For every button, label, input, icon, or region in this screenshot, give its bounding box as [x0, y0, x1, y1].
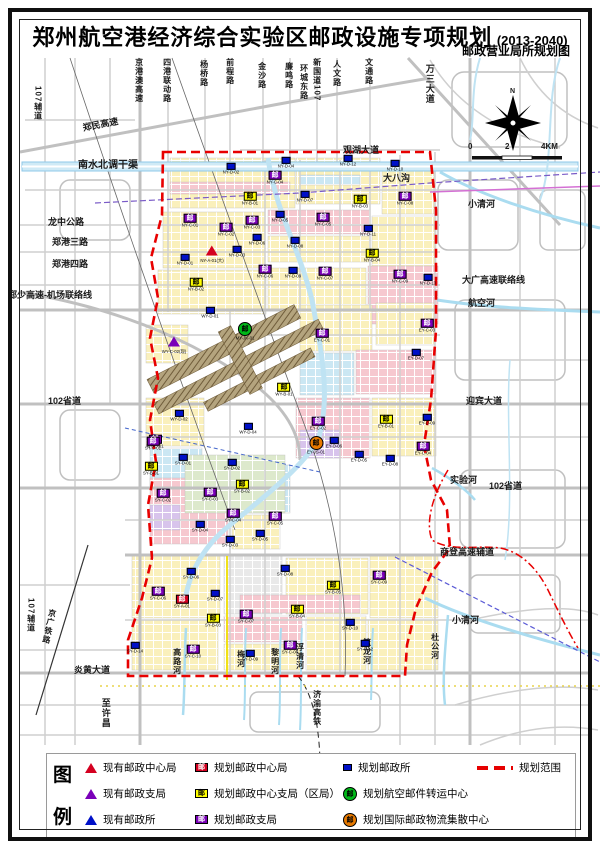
map-label: 杜公河 — [430, 633, 439, 660]
facility-code: SY-D-02 — [224, 467, 240, 471]
facility-code: EY-C-01 — [314, 339, 330, 343]
legend-item: 邮规划邮政中心支局（区局） — [195, 786, 340, 801]
facility-code: NY-B-03 — [352, 205, 368, 209]
facility-code: NY-D-12 — [340, 163, 356, 167]
facility-marker-sq-purple: 邮NY-C-09 — [389, 270, 412, 285]
map-label: 新国道107 — [312, 58, 321, 101]
facility-marker-sq-blue: SY-D-02 — [221, 459, 243, 472]
facility-code: SY-C-02 — [155, 499, 171, 503]
sq-purple-symbol-icon: 邮 — [269, 512, 282, 521]
facility-marker-sq-purple: 邮SY-C-01 — [142, 437, 164, 452]
sq-yellow-symbol-icon: 邮 — [207, 614, 220, 623]
facility-code: NY-C-06 — [257, 275, 273, 279]
facility-marker-sq-blue: SY-D-01 — [172, 454, 194, 467]
map-label: 廉鸣路 — [284, 62, 293, 89]
facility-code: EY-D-08 — [382, 463, 398, 467]
sq-purple-symbol-icon: 邮 — [398, 192, 411, 201]
planning-map-page: 107辅道郑民高速京港澳高速四港联动路杨桥路前程路金沙路廉鸣路环城东路新国道10… — [0, 0, 600, 849]
facility-marker-sq-yellow: 邮EY-B-01 — [375, 415, 397, 430]
map-label: 郑港三路 — [52, 238, 88, 248]
tri-red-symbol-icon — [206, 246, 218, 256]
map-label: 郑少高速-机场联络线 — [8, 291, 92, 301]
facility-marker-tri-red: NY-A-01(大) — [196, 246, 228, 265]
facility-code: SY-B-02 — [234, 490, 250, 494]
sq-blue-symbol-icon — [390, 160, 399, 167]
sq-yellow-symbol-icon: 邮 — [190, 278, 203, 287]
facility-marker-sq-blue: SY-D-07 — [204, 590, 226, 603]
sq-yellow-symbol-icon: 邮 — [380, 415, 393, 424]
sq-blue-symbol-icon — [386, 455, 395, 462]
facility-marker-sq-purple: 邮SY-C-03 — [199, 488, 221, 503]
facility-marker-sq-blue: SY-D-06 — [180, 568, 202, 581]
sq-purple-symbol-icon: 邮 — [316, 213, 329, 222]
facility-code: MY-JK-01 — [236, 337, 255, 341]
sq-yellow-symbol-icon: 邮 — [291, 605, 304, 614]
sq-blue-symbol-icon — [175, 410, 184, 417]
sq-blue-symbol-icon — [281, 157, 290, 164]
sq-blue-symbol-icon — [232, 246, 241, 253]
legend-title-char: 例 — [53, 802, 72, 829]
facility-marker-sq-purple: 邮SY-C-05 — [264, 512, 286, 527]
facility-marker-sq-blue: NY-D-11 — [357, 225, 379, 238]
facility-code: NY-B-02 — [188, 288, 204, 292]
sq-yellow-symbol-icon: 邮 — [354, 195, 367, 204]
facility-marker-tri-purple: WY-C-02(现) — [157, 337, 191, 356]
sq-purple-symbol-icon: 邮 — [318, 267, 331, 276]
sq-purple-symbol-icon: 邮 — [312, 417, 325, 426]
legend-title-char: 图 — [53, 760, 72, 787]
legend-item-label: 现有邮政中心局 — [103, 760, 177, 775]
sq-purple-symbol-icon: 邮 — [393, 270, 406, 279]
facility-marker-sq-blue: SY-D-05 — [249, 530, 271, 543]
sq-yellow-symbol-icon: 邮 — [366, 249, 379, 258]
sq-blue-symbol-icon — [281, 565, 290, 572]
map-label: 黎明河 — [270, 648, 279, 675]
facility-marker-sq-purple: 邮NY-C-05 — [312, 213, 335, 228]
facility-marker-sq-purple: 邮EY-C-01 — [311, 329, 333, 344]
facility-code: SY-C-08 — [282, 651, 298, 655]
facility-marker-sq-purple: 邮NY-C-04 — [264, 171, 287, 186]
facility-marker-sq-yellow: 邮SY-B-05 — [322, 581, 344, 596]
facility-code: SY-C-07 — [238, 620, 254, 624]
sq-yellow-symbol-icon: 邮 — [277, 383, 290, 392]
map-label: 4KM — [541, 143, 558, 152]
facility-marker-sq-blue: NY-D-13 — [417, 274, 440, 287]
facility-marker-cir-green: 邮MY-JK-01 — [232, 322, 258, 342]
legend-item: 现有邮政支局 — [85, 786, 166, 801]
sq-blue-symbol-icon — [244, 423, 253, 430]
legend-item-label: 规划国际邮政物流集散中心 — [363, 812, 489, 827]
map-label: 环城东路 — [299, 64, 308, 100]
facility-code: NY-C-02 — [218, 233, 234, 237]
sq-purple-symbol-icon: 邮 — [268, 171, 281, 180]
facility-code: NY-D-04 — [278, 165, 294, 169]
legend-item: 规划邮政所 — [343, 760, 411, 775]
map-label: 航空河 — [468, 299, 495, 309]
facility-marker-sq-yellow: 邮WY-B-01 — [272, 383, 296, 398]
facility-marker-sq-blue: EY-D-09 — [416, 414, 438, 427]
sq-purple-symbol-icon: 邮 — [152, 587, 165, 596]
map-label: 小清河 — [452, 616, 479, 626]
map-label: 102省道 — [48, 397, 81, 407]
facility-code: NY-C-04 — [267, 181, 283, 185]
facility-marker-sq-yellow: 邮NY-B-04 — [361, 249, 383, 264]
facility-marker-sq-blue: NY-D-12 — [337, 155, 360, 168]
facility-marker-sq-purple: 邮NY-C-07 — [314, 267, 337, 282]
legend-item: 邮规划国际邮政物流集散中心 — [343, 812, 489, 827]
legend-item-label: 现有邮政支局 — [103, 786, 166, 801]
legend-item-label: 规划邮政所 — [358, 760, 411, 775]
facility-marker-sq-blue: WY-D-02 — [167, 410, 191, 423]
facility-code: NY-D-05 — [272, 219, 288, 223]
map-overlay: 107辅道郑民高速京港澳高速四港联动路杨桥路前程路金沙路廉鸣路环城东路新国道10… — [0, 0, 600, 849]
sq-purple-symbol-icon: 邮 — [284, 641, 297, 650]
facility-code: NY-D-07 — [297, 199, 313, 203]
facility-code: NY-D-01 — [177, 262, 193, 266]
facility-marker-sq-yellow: 邮NY-B-02 — [185, 278, 207, 293]
legend-item-label: 规划邮政中心局 — [214, 760, 288, 775]
facility-marker-sq-yellow: 邮SY-B-01 — [140, 462, 162, 477]
map-label: 京港澳高速 — [134, 58, 143, 103]
facility-marker-sq-blue: SY-D-12 — [354, 640, 376, 653]
facility-code: NY-B-04 — [364, 259, 380, 263]
facility-marker-sq-purple: 邮EY-C-02 — [307, 417, 329, 432]
facility-marker-sq-blue: WY-D-01 — [198, 307, 222, 320]
facility-marker-sq-blue: NY-D-03 — [226, 246, 249, 259]
tri-red-symbol-icon — [85, 763, 97, 773]
sq-blue-symbol-icon — [187, 568, 196, 575]
facility-code: NY-C-05 — [315, 223, 331, 227]
facility-marker-sq-yellow: 邮NY-B-01 — [239, 192, 261, 207]
sq-yellow-symbol-icon: 邮 — [145, 462, 158, 471]
facility-marker-sq-purple: 邮SY-C-09 — [368, 571, 390, 586]
facility-marker-sq-blue: NY-D-10 — [384, 160, 407, 173]
facility-marker-sq-blue: SY-D-09 — [239, 650, 261, 663]
sq-red-symbol-icon: 邮 — [176, 595, 189, 604]
cir-orange-symbol-icon: 邮 — [343, 813, 357, 827]
map-label: 107辅道 — [33, 86, 42, 120]
sq-purple-symbol-icon: 邮 — [204, 488, 217, 497]
sq-blue-symbol-icon — [355, 451, 364, 458]
sq-purple-symbol-icon: 邮 — [421, 319, 434, 328]
sq-blue-symbol-icon — [226, 536, 235, 543]
facility-code: WY-D-02 — [170, 418, 187, 422]
map-label: 102省道 — [489, 482, 522, 492]
facility-code: EY-D-06 — [326, 445, 342, 449]
legend-item: 邮规划邮政支局 — [195, 812, 277, 827]
sq-blue-symbol-icon — [180, 254, 189, 261]
sq-purple-symbol-icon: 邮 — [245, 216, 258, 225]
facility-marker-sq-blue: SY-D-14 — [124, 642, 146, 655]
map-label: 大八沟 — [383, 174, 410, 184]
facility-code: EY-C-03 — [419, 329, 435, 333]
facility-code: WY-D-01 — [201, 315, 218, 319]
facility-code: SY-D-03 — [222, 544, 238, 548]
sq-purple-symbol-icon: 邮 — [219, 223, 232, 232]
facility-code: NY-D-10 — [387, 168, 403, 172]
facility-code: WY-B-01 — [275, 393, 292, 397]
facility-code: NY-C-03 — [244, 226, 260, 230]
facility-code: SY-D-10 — [342, 627, 358, 631]
map-label: 万三大道 — [424, 64, 434, 104]
sq-blue-symbol-icon — [346, 619, 355, 626]
facility-code: NY-D-09 — [285, 275, 301, 279]
facility-code: SY-A-01 — [174, 605, 190, 609]
facility-code: SY-D-12 — [357, 648, 373, 652]
facility-marker-sq-blue: WY-D-04 — [236, 423, 260, 436]
facility-code: SY-B-04 — [289, 615, 305, 619]
sq-blue-symbol-icon — [423, 414, 432, 421]
sq-purple-symbol-icon: 邮 — [316, 329, 329, 338]
sq-blue-symbol-icon — [206, 307, 215, 314]
facility-marker-sq-purple: 邮SY-C-06 — [147, 587, 169, 602]
legend-item: 现有邮政所 — [85, 812, 156, 827]
facility-code: SY-C-03 — [202, 498, 218, 502]
map-label: 高路河 — [172, 648, 181, 675]
tri-purple-symbol-icon — [85, 789, 97, 799]
facility-marker-sq-blue: EY-D-08 — [379, 455, 401, 468]
map-label: 前程路 — [225, 58, 234, 85]
facility-code: NY-B-01 — [242, 202, 258, 206]
sq-red-symbol-icon: 邮 — [195, 763, 208, 772]
sq-blue-symbol-icon — [252, 234, 261, 241]
facility-marker-sq-blue: EY-D-07 — [405, 349, 427, 362]
facility-marker-sq-blue: SY-D-03 — [219, 536, 241, 549]
sq-blue-symbol-icon — [300, 191, 309, 198]
facility-code: SY-D-04 — [192, 529, 208, 533]
facility-marker-sq-blue: NY-D-08 — [284, 237, 307, 250]
facility-code: NY-D-08 — [287, 245, 303, 249]
facility-code: NY-D-11 — [360, 233, 376, 237]
sq-blue-symbol-icon — [246, 650, 255, 657]
legend-item-label: 规划邮政支局 — [214, 812, 277, 827]
map-label: 炎黄大道 — [74, 666, 110, 676]
sq-purple-symbol-icon: 邮 — [417, 442, 430, 451]
map-label: 2 — [505, 143, 509, 152]
sq-blue-symbol-icon — [196, 521, 205, 528]
facility-code: NY-D-13 — [420, 282, 436, 286]
facility-code: SY-C-01 — [145, 447, 161, 451]
map-label: 107辅道 — [26, 598, 35, 632]
sq-blue-symbol-icon — [412, 349, 421, 356]
facility-code: SY-C-10 — [185, 655, 201, 659]
facility-marker-sq-purple: 邮NY-C-02 — [215, 223, 238, 238]
map-label: 郑港四路 — [52, 260, 88, 270]
facility-code: NY-A-01(大) — [200, 257, 223, 263]
sq-purple-symbol-icon: 邮 — [373, 571, 386, 580]
facility-marker-sq-yellow: 邮NY-B-03 — [349, 195, 371, 210]
facility-code: SY-D-07 — [207, 598, 223, 602]
map-label: 小清河 — [468, 200, 495, 210]
page-title: 郑州航空港经济综合实验区邮政设施专项规划 — [32, 25, 492, 50]
sq-blue-symbol-icon — [211, 590, 220, 597]
facility-code: NY-C-01 — [182, 224, 198, 228]
map-label: 龙中公路 — [48, 218, 84, 228]
legend-item: 现有邮政中心局 — [85, 760, 177, 775]
facility-marker-sq-blue: NY-D-02 — [220, 163, 243, 176]
map-label: 杨桥路 — [199, 60, 208, 87]
sq-blue-symbol-icon — [179, 454, 188, 461]
sq-blue-symbol-icon — [423, 274, 432, 281]
map-label: 济渝高铁 — [312, 690, 321, 726]
tri-blue-symbol-icon — [85, 815, 97, 825]
facility-marker-sq-red: 邮SY-A-01 — [171, 595, 193, 610]
map-label: 大广高速联络线 — [462, 276, 525, 286]
facility-code: SY-D-09 — [242, 658, 258, 662]
map-label: 0 — [468, 143, 472, 152]
sq-blue-symbol-icon — [275, 211, 284, 218]
map-label: 实验河 — [450, 476, 477, 486]
map-label: 金沙路 — [257, 62, 266, 89]
facility-code: WY-C-02(现) — [162, 348, 187, 354]
facility-marker-sq-purple: 邮EY-C-03 — [416, 319, 438, 334]
facility-code: EY-D-07 — [408, 357, 424, 361]
facility-code: SY-C-05 — [267, 522, 283, 526]
sq-purple-symbol-icon: 邮 — [195, 815, 208, 824]
facility-marker-sq-blue: SY-D-10 — [339, 619, 361, 632]
facility-code: EY-D-09 — [419, 422, 435, 426]
facility-code: NY-C-07 — [317, 277, 333, 281]
sq-blue-symbol-icon — [364, 225, 373, 232]
map-label: 南水北调干渠 — [78, 161, 138, 172]
sq-purple-symbol-icon: 邮 — [240, 610, 253, 619]
map-label: N — [510, 88, 515, 96]
sq-blue-symbol-icon — [228, 459, 237, 466]
map-label: 至许昌 — [100, 698, 110, 728]
legend-item: 邮规划邮政中心局 — [195, 760, 288, 775]
facility-code: NY-D-06 — [249, 242, 265, 246]
sq-yellow-symbol-icon: 邮 — [195, 789, 208, 798]
facility-marker-sq-yellow: 邮SY-B-04 — [286, 605, 308, 620]
sq-yellow-symbol-icon: 邮 — [236, 480, 249, 489]
facility-marker-sq-purple: 邮SY-C-04 — [222, 509, 244, 524]
facility-marker-sq-purple: 邮NY-C-08 — [394, 192, 417, 207]
cir-orange-symbol-icon: 邮 — [309, 436, 323, 450]
facility-code: SY-D-06 — [183, 576, 199, 580]
legend-item-label: 规划航空邮件转运中心 — [363, 786, 468, 801]
facility-code: SY-B-05 — [325, 591, 341, 595]
map-label: 京广铁路 — [41, 608, 57, 645]
sq-blue-symbol-icon — [361, 640, 370, 647]
legend-item-label: 现有邮政所 — [103, 812, 156, 827]
sq-purple-symbol-icon: 邮 — [227, 509, 240, 518]
facility-code: EY-B-01 — [378, 425, 394, 429]
facility-code: SY-B-01 — [143, 472, 159, 476]
sq-blue-symbol-icon — [131, 642, 140, 649]
facility-marker-sq-purple: 邮NY-C-01 — [179, 214, 202, 229]
facility-marker-sq-blue: NY-D-04 — [275, 157, 298, 170]
sq-purple-symbol-icon: 邮 — [157, 489, 170, 498]
sq-blue-symbol-icon — [290, 237, 299, 244]
facility-marker-sq-blue: NY-D-05 — [269, 211, 292, 224]
facility-marker-sq-blue: NY-D-06 — [246, 234, 269, 247]
facility-marker-sq-purple: 邮SY-C-02 — [152, 489, 174, 504]
facility-code: SY-C-06 — [150, 597, 166, 601]
sq-blue-symbol-icon — [226, 163, 235, 170]
facility-marker-sq-blue: EY-D-06 — [323, 437, 345, 450]
sq-purple-symbol-icon: 邮 — [258, 265, 271, 274]
legend-item: 邮规划航空邮件转运中心 — [343, 786, 468, 801]
facility-code: EY-C-02 — [310, 427, 326, 431]
facility-marker-sq-purple: 邮SY-C-07 — [235, 610, 257, 625]
facility-marker-sq-blue: NY-D-07 — [294, 191, 317, 204]
facility-marker-sq-yellow: 邮SY-B-03 — [202, 614, 224, 629]
sq-blue-symbol-icon — [256, 530, 265, 537]
facility-code: SY-C-04 — [225, 519, 241, 523]
facility-marker-sq-yellow: 邮SY-B-02 — [231, 480, 253, 495]
legend-panel: 图例现有邮政中心局现有邮政支局现有邮政所邮规划邮政中心局邮规划邮政中心支局（区局… — [46, 753, 576, 838]
tri-purple-symbol-icon — [168, 337, 180, 347]
facility-marker-sq-purple: 邮EY-C-04 — [412, 442, 434, 457]
map-label: 迎宾大道 — [466, 397, 502, 407]
facility-code: EY-D-05 — [351, 459, 367, 463]
facility-marker-sq-blue: NY-D-01 — [174, 254, 197, 267]
facility-code: SY-D-08 — [277, 573, 293, 577]
page-subtitle: 邮政营业局所规划图 — [462, 42, 570, 59]
legend-item-label: 规划范围 — [519, 760, 561, 775]
facility-marker-sq-blue: SY-D-08 — [274, 565, 296, 578]
facility-code: NY-C-09 — [392, 280, 408, 284]
facility-marker-sq-purple: 邮SY-C-10 — [182, 645, 204, 660]
facility-marker-sq-purple: 邮NY-C-06 — [254, 265, 277, 280]
sq-blue-symbol-icon — [288, 267, 297, 274]
facility-code: SY-D-05 — [252, 538, 268, 542]
cir-green-symbol-icon: 邮 — [238, 322, 252, 336]
facility-marker-sq-purple: 邮NY-C-03 — [241, 216, 264, 231]
facility-code: SY-B-03 — [205, 624, 221, 628]
map-label: 文通路 — [364, 58, 373, 85]
facility-code: WY-D-04 — [239, 431, 256, 435]
facility-code: EY-C-04 — [415, 452, 431, 456]
facility-code: NY-D-03 — [229, 254, 245, 258]
sq-blue-symbol-icon — [330, 437, 339, 444]
planning-boundary-dash-icon — [477, 766, 513, 770]
facility-code: EY-JS-01 — [307, 451, 325, 455]
facility-code: SY-D-01 — [175, 462, 191, 466]
sq-yellow-symbol-icon: 邮 — [244, 192, 257, 201]
sq-purple-symbol-icon: 邮 — [187, 645, 200, 654]
legend-item-label: 规划邮政中心支局（区局） — [214, 786, 340, 801]
sq-blue-symbol-icon — [343, 764, 352, 771]
facility-marker-sq-blue: SY-D-04 — [189, 521, 211, 534]
map-label: 郑民高速 — [82, 117, 119, 133]
facility-code: NY-D-02 — [223, 171, 239, 175]
map-label: 商登高速辅道 — [440, 548, 494, 558]
map-label: 人文路 — [332, 60, 341, 87]
sq-blue-symbol-icon — [343, 155, 352, 162]
sq-purple-symbol-icon: 邮 — [147, 437, 160, 446]
sq-purple-symbol-icon: 邮 — [183, 214, 196, 223]
facility-marker-sq-blue: EY-D-05 — [348, 451, 370, 464]
facility-code: NY-C-08 — [397, 202, 413, 206]
map-label: 四港联动路 — [162, 58, 171, 103]
cir-green-symbol-icon: 邮 — [343, 787, 357, 801]
facility-marker-sq-purple: 邮SY-C-08 — [279, 641, 301, 656]
facility-marker-sq-blue: NY-D-09 — [282, 267, 305, 280]
facility-code: SY-C-09 — [371, 581, 387, 585]
facility-code: SY-D-14 — [127, 650, 143, 654]
sq-yellow-symbol-icon: 邮 — [327, 581, 340, 590]
legend-item: 规划范围 — [477, 760, 561, 775]
